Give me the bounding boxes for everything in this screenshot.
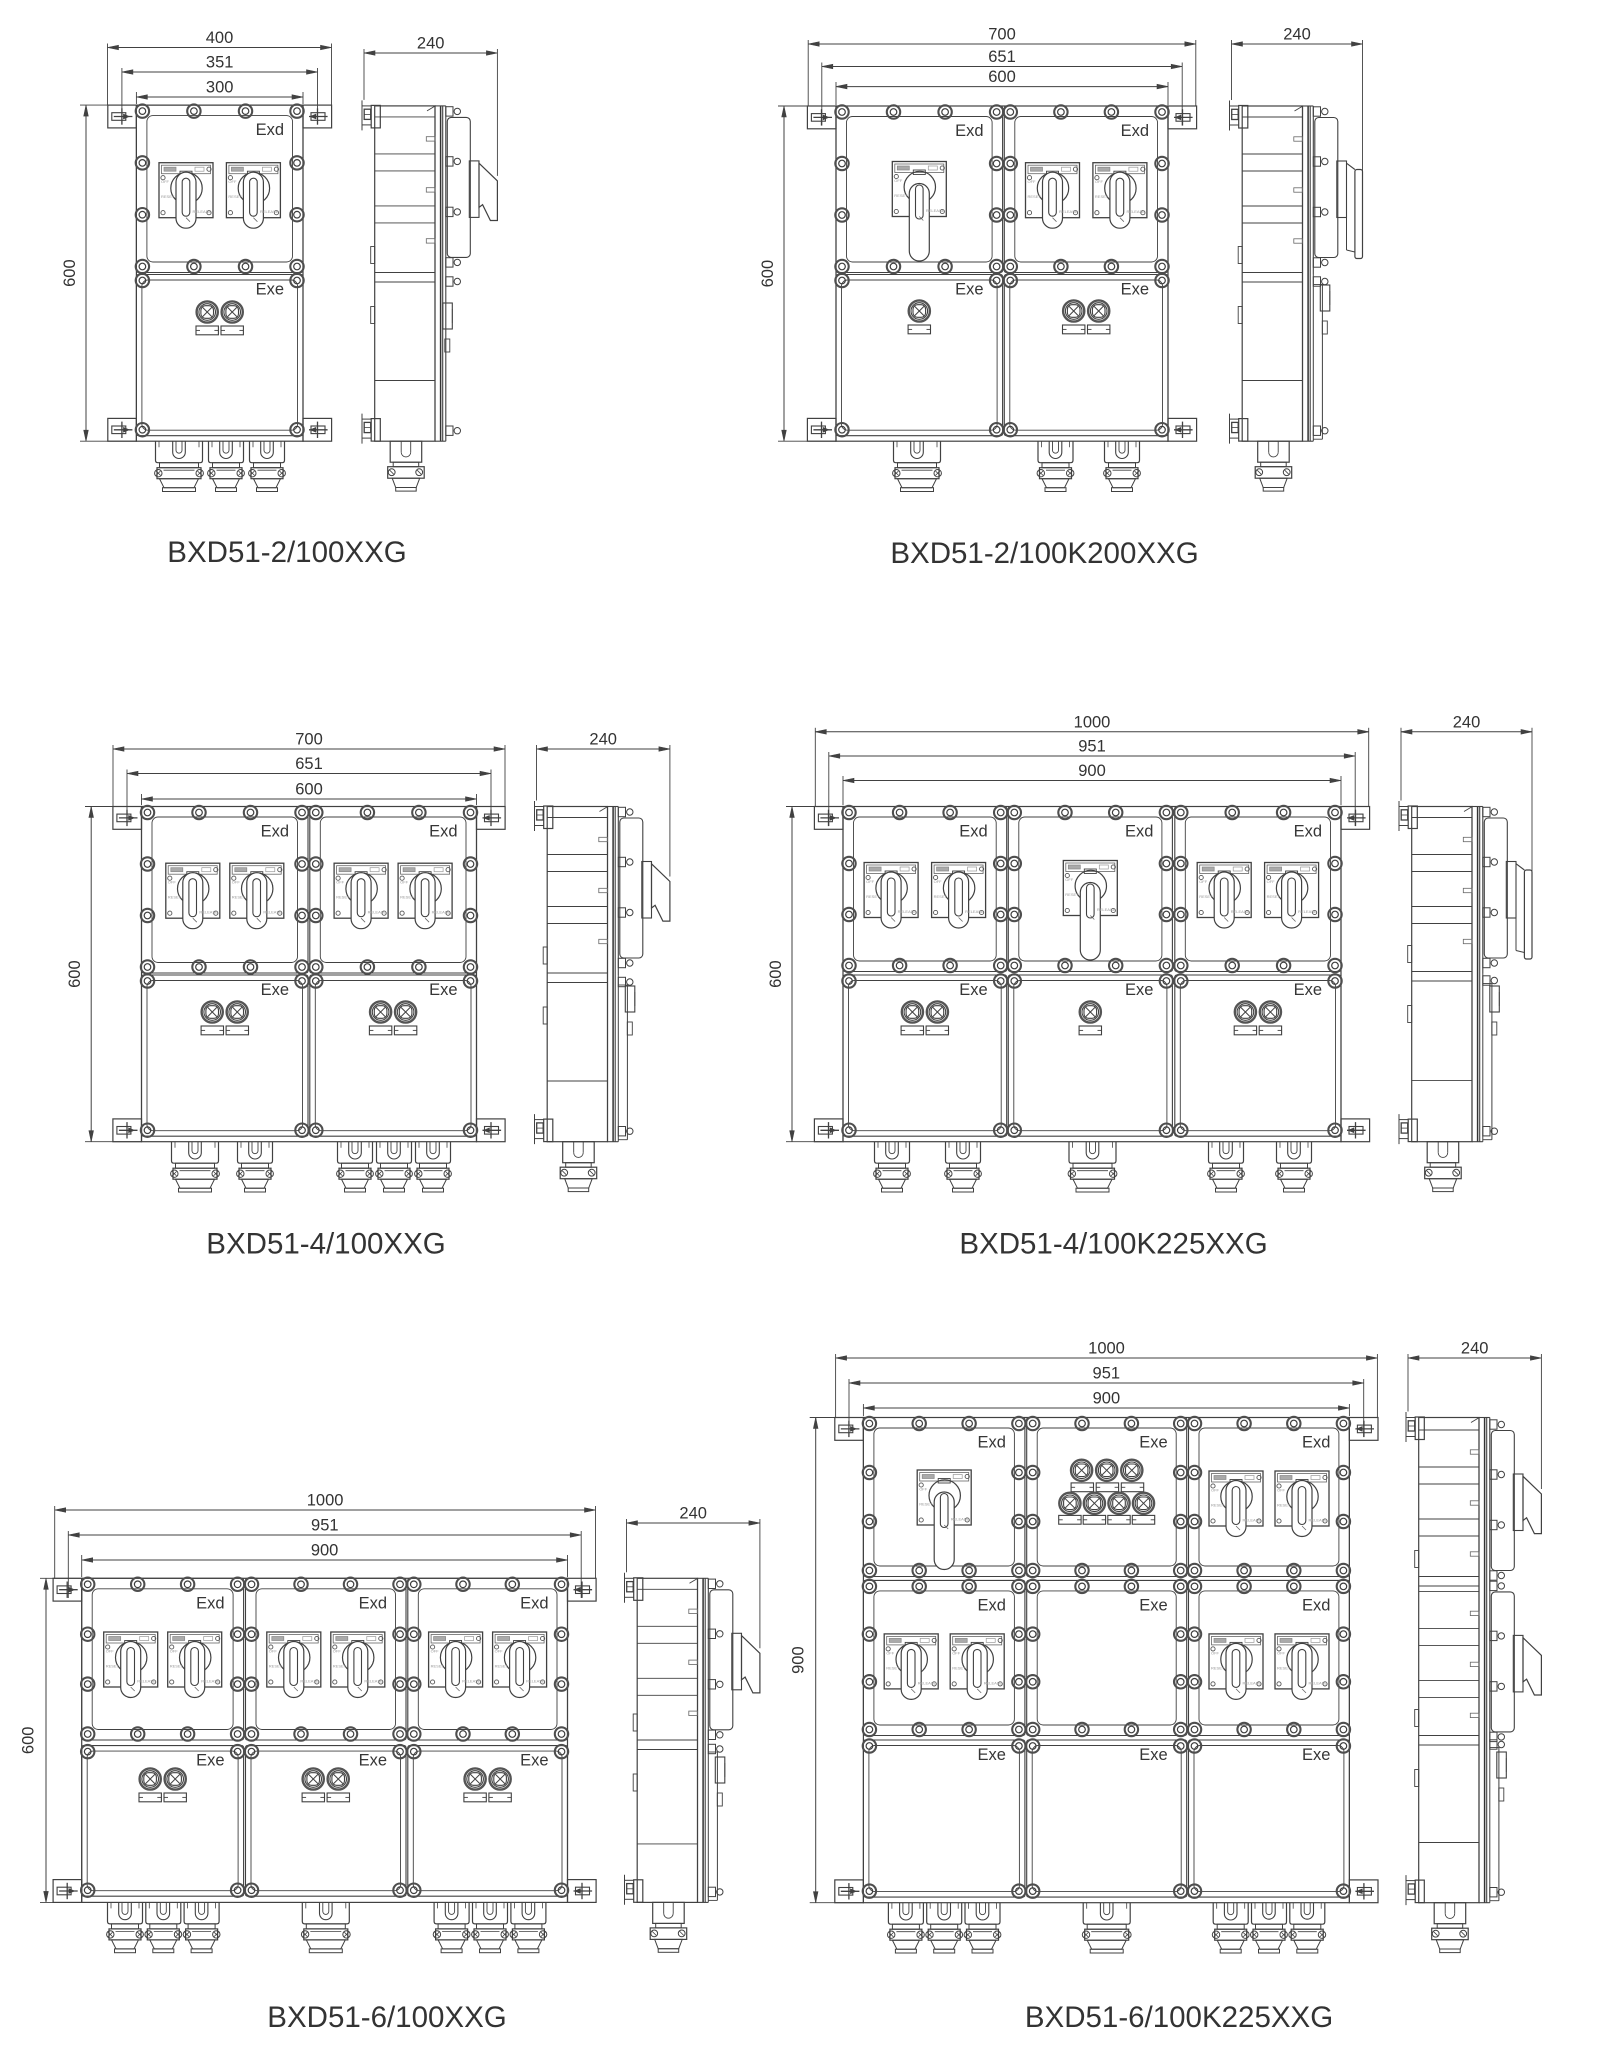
svg-text:1000: 1000 [1074, 713, 1111, 731]
svg-text:OFF: OFF [952, 1650, 961, 1655]
svg-text:RELEASE: RELEASE [1243, 1518, 1262, 1523]
svg-text:RELEASE: RELEASE [1309, 1518, 1328, 1523]
svg-text:951: 951 [311, 1517, 339, 1535]
svg-text:RELEASE: RELEASE [364, 1679, 383, 1684]
svg-text:RELEASE: RELEASE [199, 910, 218, 915]
svg-text:BXD51-6/100K225XXG: BXD51-6/100K225XXG [1025, 2001, 1333, 2034]
svg-text:OFF: OFF [886, 1650, 895, 1655]
svg-text:651: 651 [295, 755, 323, 773]
svg-text:RESET: RESET [1211, 1665, 1225, 1670]
svg-text:OFF: OFF [1028, 179, 1037, 184]
svg-text:Exd: Exd [359, 1594, 387, 1612]
svg-text:400: 400 [206, 29, 234, 47]
svg-text:Exd: Exd [261, 823, 289, 841]
svg-text:RELEASE: RELEASE [368, 910, 387, 915]
svg-text:240: 240 [589, 731, 617, 749]
svg-text:Exd: Exd [977, 1596, 1005, 1614]
svg-text:600: 600 [295, 781, 323, 799]
svg-text:OFF: OFF [934, 879, 943, 884]
svg-text:Exd: Exd [1294, 823, 1322, 841]
svg-text:OFF: OFF [1277, 1488, 1286, 1493]
svg-text:OFF: OFF [1267, 879, 1276, 884]
svg-text:OFF: OFF [336, 880, 345, 885]
svg-text:BXD51-2/100XXG: BXD51-2/100XXG [167, 536, 406, 569]
svg-text:RESET: RESET [934, 894, 948, 899]
svg-text:300: 300 [206, 79, 234, 97]
svg-text:OFF: OFF [1199, 879, 1208, 884]
svg-text:Exe: Exe [1121, 281, 1149, 299]
svg-text:RESET: RESET [866, 894, 880, 899]
svg-text:OFF: OFF [1211, 1650, 1220, 1655]
svg-text:RELEASE: RELEASE [260, 209, 279, 214]
svg-text:RELEASE: RELEASE [926, 208, 945, 213]
svg-text:RELEASE: RELEASE [1298, 909, 1317, 914]
svg-text:RESET: RESET [495, 1664, 509, 1669]
svg-text:RESET: RESET [1028, 194, 1042, 199]
svg-text:OFF: OFF [170, 1649, 179, 1654]
svg-text:RESET: RESET [1277, 1665, 1291, 1670]
svg-text:651: 651 [988, 48, 1016, 66]
svg-text:240: 240 [679, 1505, 707, 1523]
svg-text:OFF: OFF [106, 1649, 115, 1654]
svg-text:240: 240 [1461, 1340, 1489, 1358]
svg-text:RELEASE: RELEASE [1097, 907, 1116, 912]
svg-text:Exd: Exd [256, 121, 284, 139]
svg-text:600: 600 [988, 68, 1016, 86]
svg-text:RESET: RESET [1095, 194, 1109, 199]
svg-text:Exd: Exd [977, 1434, 1005, 1452]
svg-text:Exe: Exe [520, 1752, 548, 1770]
svg-text:Exe: Exe [977, 1746, 1005, 1764]
svg-text:OFF: OFF [1277, 1650, 1286, 1655]
svg-text:Exd: Exd [1302, 1596, 1330, 1614]
svg-text:Exe: Exe [955, 281, 983, 299]
svg-text:RELEASE: RELEASE [1059, 209, 1078, 214]
svg-text:600: 600 [20, 1727, 38, 1755]
svg-text:1000: 1000 [307, 1492, 344, 1510]
svg-text:Exd: Exd [1302, 1434, 1330, 1452]
svg-text:OFF: OFF [400, 880, 409, 885]
svg-text:Exe: Exe [196, 1752, 224, 1770]
svg-text:Exe: Exe [1139, 1434, 1167, 1452]
svg-text:OFF: OFF [495, 1649, 504, 1654]
svg-text:Exe: Exe [261, 981, 289, 999]
svg-text:600: 600 [66, 960, 84, 988]
svg-text:OFF: OFF [866, 879, 875, 884]
svg-text:600: 600 [767, 960, 785, 988]
svg-text:Exd: Exd [520, 1594, 548, 1612]
svg-text:RELEASE: RELEASE [1126, 209, 1145, 214]
svg-text:Exd: Exd [955, 122, 983, 140]
svg-text:BXD51-2/100K200XXG: BXD51-2/100K200XXG [890, 537, 1198, 570]
svg-text:900: 900 [311, 1542, 339, 1560]
svg-text:Exd: Exd [196, 1594, 224, 1612]
svg-text:RELEASE: RELEASE [137, 1679, 156, 1684]
svg-text:RELEASE: RELEASE [263, 910, 282, 915]
svg-text:BXD51-4/100XXG: BXD51-4/100XXG [206, 1228, 445, 1261]
svg-text:BXD51-4/100K225XXG: BXD51-4/100K225XXG [959, 1228, 1267, 1261]
svg-text:Exe: Exe [359, 1752, 387, 1770]
svg-text:RESET: RESET [161, 194, 175, 199]
svg-text:RELEASE: RELEASE [984, 1680, 1003, 1685]
svg-text:700: 700 [988, 26, 1016, 44]
svg-text:Exe: Exe [1125, 981, 1153, 999]
svg-text:RELEASE: RELEASE [918, 1680, 937, 1685]
svg-text:OFF: OFF [431, 1649, 440, 1654]
svg-text:900: 900 [1093, 1390, 1121, 1408]
svg-text:RESET: RESET [400, 895, 414, 900]
svg-text:RESET: RESET [1211, 1503, 1225, 1508]
svg-text:RESET: RESET [168, 895, 182, 900]
svg-text:RESET: RESET [232, 895, 246, 900]
svg-text:OFF: OFF [168, 880, 177, 885]
svg-text:900: 900 [1078, 762, 1106, 780]
svg-text:Exd: Exd [1125, 823, 1153, 841]
svg-text:RELEASE: RELEASE [201, 1679, 220, 1684]
svg-text:OFF: OFF [161, 179, 170, 184]
svg-text:BXD51-6/100XXG: BXD51-6/100XXG [267, 2001, 506, 2034]
svg-text:OFF: OFF [333, 1649, 342, 1654]
svg-text:951: 951 [1093, 1365, 1121, 1383]
svg-text:RESET: RESET [919, 1502, 933, 1507]
svg-text:OFF: OFF [919, 1487, 928, 1492]
svg-text:951: 951 [1078, 738, 1106, 756]
svg-text:Exe: Exe [1302, 1746, 1330, 1764]
svg-text:240: 240 [1453, 713, 1481, 731]
svg-text:RELEASE: RELEASE [462, 1679, 481, 1684]
svg-text:Exe: Exe [959, 981, 987, 999]
svg-text:RESET: RESET [952, 1665, 966, 1670]
svg-text:OFF: OFF [232, 880, 241, 885]
svg-text:900: 900 [790, 1646, 808, 1674]
svg-text:Exd: Exd [1121, 122, 1149, 140]
svg-text:240: 240 [417, 35, 445, 53]
svg-text:600: 600 [759, 260, 777, 288]
svg-text:RESET: RESET [431, 1664, 445, 1669]
svg-text:RESET: RESET [1065, 892, 1079, 897]
svg-text:240: 240 [1283, 26, 1311, 44]
svg-text:RELEASE: RELEASE [1309, 1680, 1328, 1685]
svg-text:OFF: OFF [269, 1649, 278, 1654]
svg-text:RELEASE: RELEASE [1243, 1680, 1262, 1685]
svg-text:RELEASE: RELEASE [300, 1679, 319, 1684]
svg-text:RESET: RESET [170, 1664, 184, 1669]
svg-text:OFF: OFF [228, 179, 237, 184]
svg-text:RESET: RESET [269, 1664, 283, 1669]
svg-text:OFF: OFF [1095, 179, 1104, 184]
svg-text:600: 600 [61, 259, 79, 287]
svg-text:RELEASE: RELEASE [951, 1517, 970, 1522]
svg-text:RELEASE: RELEASE [526, 1679, 545, 1684]
svg-text:Exe: Exe [1139, 1746, 1167, 1764]
svg-text:RESET: RESET [1267, 894, 1281, 899]
svg-text:RESET: RESET [333, 1664, 347, 1669]
svg-text:RESET: RESET [886, 1665, 900, 1670]
svg-text:RESET: RESET [336, 895, 350, 900]
svg-text:RELEASE: RELEASE [193, 209, 212, 214]
svg-text:OFF: OFF [1065, 877, 1074, 882]
svg-text:Exd: Exd [959, 823, 987, 841]
svg-text:Exe: Exe [1294, 981, 1322, 999]
svg-text:700: 700 [295, 731, 323, 749]
svg-text:1000: 1000 [1088, 1340, 1125, 1358]
svg-text:RESET: RESET [1199, 894, 1213, 899]
svg-text:RESET: RESET [1277, 1503, 1291, 1508]
svg-text:OFF: OFF [1211, 1488, 1220, 1493]
svg-text:Exe: Exe [429, 981, 457, 999]
svg-text:Exe: Exe [256, 281, 284, 299]
svg-text:OFF: OFF [894, 178, 903, 183]
svg-text:RESET: RESET [228, 194, 242, 199]
svg-text:RELEASE: RELEASE [1231, 909, 1250, 914]
svg-text:RELEASE: RELEASE [432, 910, 451, 915]
svg-text:RESET: RESET [106, 1664, 120, 1669]
svg-text:Exe: Exe [1139, 1596, 1167, 1614]
svg-text:RELEASE: RELEASE [898, 909, 917, 914]
svg-text:RESET: RESET [894, 193, 908, 198]
svg-text:351: 351 [206, 54, 234, 72]
svg-text:Exd: Exd [429, 823, 457, 841]
svg-text:RELEASE: RELEASE [965, 909, 984, 914]
